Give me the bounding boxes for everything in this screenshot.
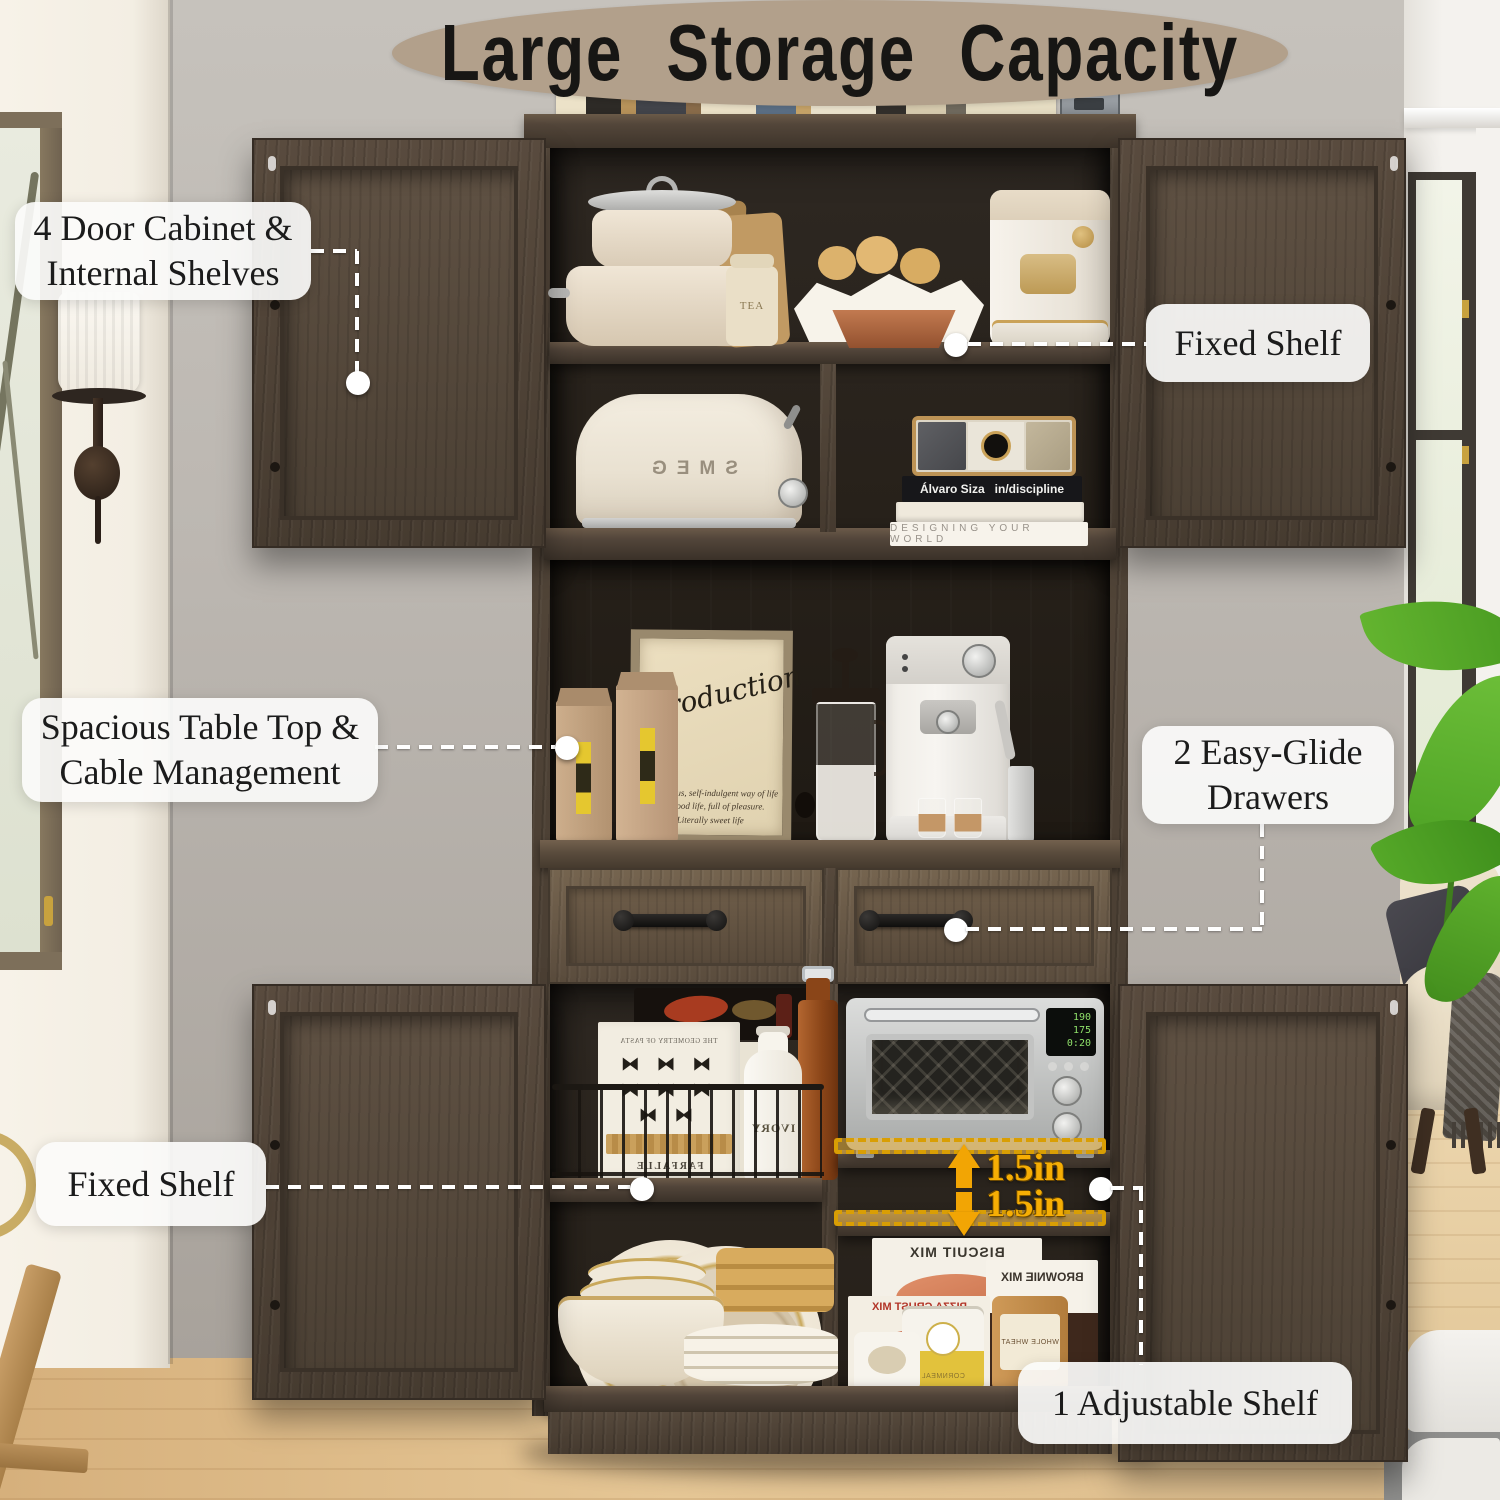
- connector-dot: [944, 333, 968, 357]
- toaster-dial: [778, 478, 808, 508]
- arrow-down-icon: [948, 1212, 980, 1236]
- radio-speaker-right: [1026, 422, 1070, 470]
- portafilter-knob: [936, 710, 960, 734]
- door-bumper: [268, 1000, 276, 1015]
- ottoman: [1406, 1330, 1500, 1432]
- pot-top: [592, 210, 732, 268]
- right-window-mullion: [1416, 430, 1462, 440]
- espresso-knob: [962, 644, 996, 678]
- coffee-maker-top: [990, 190, 1110, 220]
- connector-dot: [630, 1177, 654, 1201]
- coffee-bag-fold: [556, 688, 612, 706]
- callout-adjustable-shelf: 1 Adjustable Shelf: [1018, 1362, 1352, 1444]
- hinge-screw: [1386, 300, 1396, 310]
- cornmeal-medallion: [926, 1322, 960, 1356]
- callout-text-line: 4 Door Cabinet &: [34, 206, 293, 251]
- oven-knob: [1052, 1076, 1082, 1106]
- book-bottom: DESIGNING YOUR WORLD: [890, 522, 1088, 546]
- espresso-glass: [954, 798, 982, 838]
- door-upper-left: [252, 138, 546, 548]
- callout-text-line: 2 Easy-Glide: [1174, 730, 1363, 775]
- pasta-box-title-text: THE GEOMETRY OF PASTA: [620, 1037, 718, 1045]
- callout-text-line: Spacious Table Top &: [41, 705, 360, 750]
- oven-display-line: 0:20: [1051, 1037, 1091, 1050]
- cabinet-top-board: [524, 114, 1136, 148]
- oven-handle: [864, 1008, 1040, 1022]
- title-banner: Large Storage Capacity: [392, 0, 1288, 106]
- radio-center: [968, 422, 1024, 470]
- sconce-finial: [95, 496, 101, 544]
- book-top: Álvaro Siza in/discipline: [902, 476, 1082, 502]
- wire-basket-rail: [552, 1172, 824, 1176]
- fixed-shelf-board-bottom: [550, 1178, 822, 1202]
- crown-molding: [1404, 108, 1500, 128]
- measure-label-bottom: 1.5in: [986, 1182, 1065, 1226]
- callout-text-line: Fixed Shelf: [1175, 321, 1342, 366]
- french-press-knob: [832, 648, 858, 662]
- radio-speaker-left: [918, 422, 966, 470]
- callout-spacious-table-top: Spacious Table Top & Cable Management: [22, 698, 378, 802]
- hinge-screw: [270, 1140, 280, 1150]
- book-bottom-text: DESIGNING YOUR WORLD: [890, 523, 1088, 545]
- oven-button: [1064, 1062, 1073, 1071]
- coffee-bag-label: [576, 742, 591, 814]
- book-middle: [896, 502, 1084, 522]
- coffee-bag-fold: [616, 672, 678, 690]
- door-bumper: [1390, 1000, 1398, 1015]
- left-window-handle: [44, 896, 53, 926]
- oven-button: [1048, 1062, 1057, 1071]
- milk-jug: [1008, 766, 1034, 844]
- connector-line: [1139, 1188, 1143, 1365]
- hinge-screw: [1386, 1300, 1396, 1310]
- radio-body: [912, 416, 1076, 476]
- cable-hole: [795, 792, 815, 818]
- door-bumper: [1390, 156, 1398, 171]
- sconce-shade: [58, 292, 140, 394]
- connector-dot: [346, 371, 370, 395]
- arrow-up-shaft: [956, 1166, 972, 1188]
- callout-easy-glide-drawers: 2 Easy-Glide Drawers: [1142, 726, 1394, 824]
- right-window-hinge: [1462, 446, 1469, 464]
- french-press-glass: [816, 702, 876, 842]
- callout-text-line: Fixed Shelf: [68, 1162, 235, 1207]
- toaster-brand-text: SMEG: [642, 458, 738, 480]
- wire-basket-bars: [556, 1090, 822, 1180]
- hinge-screw: [270, 462, 280, 472]
- door-panel: [280, 1012, 518, 1372]
- coffee-maker-group: [1020, 254, 1076, 294]
- tea-canister-lid: [730, 254, 774, 268]
- oven-display-line: 175: [1051, 1024, 1091, 1037]
- callout-text-line: Drawers: [1207, 775, 1329, 820]
- tea-canister: TEA: [726, 266, 778, 346]
- wheat-can-text: WHOLE WHEAT: [1001, 1339, 1059, 1346]
- connector-line: [266, 1185, 630, 1189]
- left-window-frame-bottom: [0, 952, 62, 970]
- oven-display-line: 190: [1051, 1011, 1091, 1024]
- connector-line: [311, 249, 357, 253]
- book-author-text: Álvaro Siza: [920, 482, 985, 496]
- tea-canister-label: TEA: [740, 300, 764, 312]
- hinge-screw: [270, 1300, 280, 1310]
- arrow-down-shaft: [956, 1192, 972, 1214]
- callout-text-line: 1 Adjustable Shelf: [1052, 1381, 1318, 1426]
- connector-line: [968, 342, 1147, 346]
- oven-button: [1080, 1062, 1089, 1071]
- plate-stack: [684, 1324, 838, 1386]
- callout-four-door-cabinet: 4 Door Cabinet & Internal Shelves: [15, 202, 311, 300]
- book-title-text: in/discipline: [995, 482, 1064, 496]
- oven-window: [866, 1034, 1034, 1120]
- callout-text-line: Internal Shelves: [47, 251, 280, 296]
- espresso-glass: [918, 798, 946, 838]
- rug-white: [1402, 1438, 1500, 1500]
- bread-bun: [818, 246, 856, 280]
- sconce-stem: [93, 398, 103, 452]
- connector-line: [355, 251, 359, 373]
- callout-fixed-shelf-bottom: Fixed Shelf: [36, 1142, 266, 1226]
- arrow-up-icon: [948, 1144, 980, 1168]
- bread-bun: [856, 236, 898, 274]
- table-top-board: [540, 840, 1120, 868]
- toaster-brand: SMEG: [610, 458, 770, 480]
- door-panel: [280, 166, 518, 520]
- small-can-art: [868, 1346, 906, 1374]
- hutch-divider: [820, 364, 836, 532]
- recipe-box-slot: [1074, 98, 1104, 110]
- annotated-product-image: TEA SMEG Álvaro Siza in/discipline DESIG…: [0, 0, 1500, 1500]
- small-can: [854, 1332, 920, 1388]
- coffee-bag-label: [640, 728, 655, 804]
- connector-line: [1260, 824, 1264, 929]
- connector-dot: [555, 736, 579, 760]
- oven-display: 190 175 0:20: [1046, 1008, 1096, 1056]
- pot-handle: [548, 288, 570, 298]
- door-lower-left: [252, 984, 546, 1400]
- connector-line: [966, 927, 1262, 931]
- page-title: Large Storage Capacity: [441, 7, 1239, 99]
- wood-bowl-stack: [716, 1248, 834, 1312]
- biscuit-mix-text: BISCUIT MIX: [909, 1244, 1005, 1260]
- toaster-base: [582, 518, 796, 528]
- hinge-screw: [1386, 1140, 1396, 1150]
- callout-text-line: Cable Management: [60, 750, 341, 795]
- bread-bun: [900, 248, 940, 284]
- callout-fixed-shelf-top: Fixed Shelf: [1146, 304, 1370, 382]
- hinge-screw: [270, 300, 280, 310]
- pasta-box-header: THE GEOMETRY OF PASTA: [598, 1030, 740, 1048]
- espresso-light: [902, 654, 908, 660]
- connector-line: [375, 745, 555, 749]
- right-window-hinge: [1462, 300, 1469, 318]
- espresso-light: [902, 666, 908, 672]
- connector-dot: [1089, 1177, 1113, 1201]
- left-window-frame-top: [0, 112, 62, 128]
- door-bumper: [268, 156, 276, 171]
- radio-dial: [981, 431, 1011, 461]
- sconce-backplate: [74, 446, 120, 500]
- coffee-maker-knob: [1072, 226, 1094, 248]
- hinge-screw: [1386, 462, 1396, 472]
- connector-dot: [944, 918, 968, 942]
- drawer-handle-left: [622, 914, 718, 927]
- pizza-slice-art: [732, 1000, 776, 1020]
- brownie-mix-text: BROWNIE MIX: [1001, 1270, 1084, 1284]
